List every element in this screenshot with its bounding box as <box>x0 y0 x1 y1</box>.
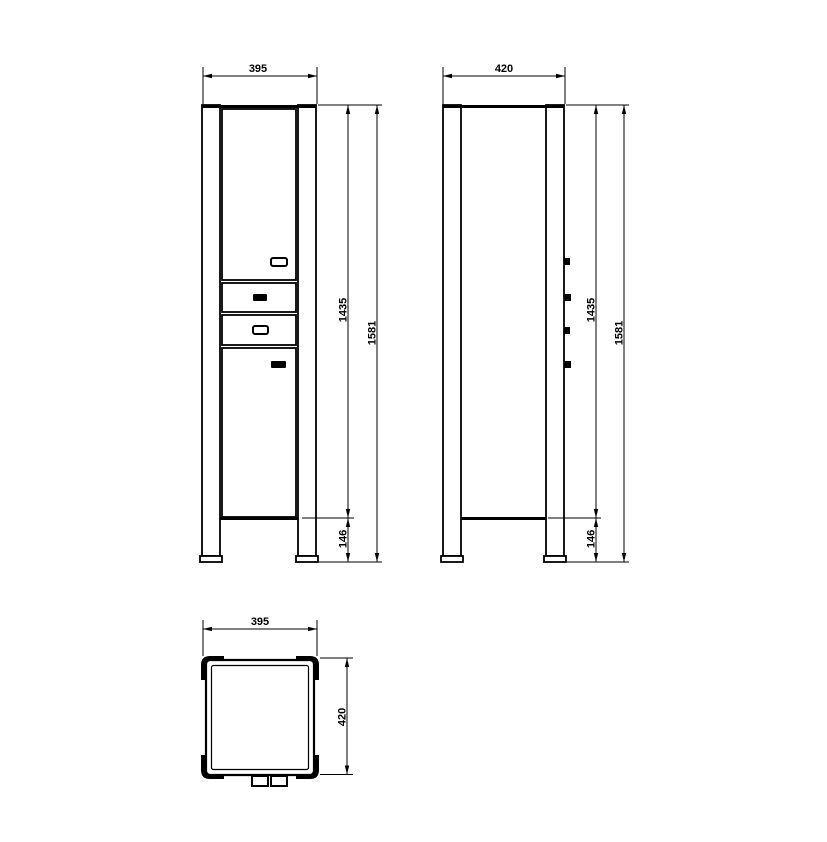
front-total-height-label: 1581 <box>367 321 379 345</box>
lower-door-handle <box>271 361 286 368</box>
top-depth-label: 420 <box>337 708 349 726</box>
arrow-down-icon <box>346 553 350 562</box>
top-cabinet <box>203 658 317 786</box>
arrow-right-icon <box>556 74 565 78</box>
arrow-down-icon <box>346 509 350 518</box>
cabinet-drawing: 395 1435 <box>0 0 827 842</box>
front-width-label: 395 <box>249 63 267 75</box>
drawer-1-handle <box>253 294 267 301</box>
arrow-down-icon <box>622 553 626 562</box>
front-lower-door <box>222 348 296 517</box>
front-leg-height-label: 146 <box>338 530 350 548</box>
arrow-up-icon <box>345 658 349 667</box>
arrow-down-icon <box>375 553 379 562</box>
side-back-foot <box>441 556 463 562</box>
arrow-down-icon <box>345 766 349 775</box>
front-left-leg <box>202 105 220 556</box>
drawer-1-handle-side <box>564 294 571 301</box>
arrow-left-icon <box>203 627 212 631</box>
top-width-dimension: 395 <box>203 616 317 656</box>
side-front-leg <box>546 105 564 556</box>
top-depth-dimension: 420 <box>320 658 353 775</box>
arrow-up-icon <box>594 518 598 527</box>
front-view: 395 1435 <box>200 63 382 562</box>
drawer-2-handle <box>253 326 268 334</box>
arrow-down-icon <box>594 553 598 562</box>
arrow-up-icon <box>375 105 379 114</box>
front-left-foot <box>200 556 222 562</box>
side-depth-label: 420 <box>495 63 513 75</box>
front-right-leg <box>298 105 316 556</box>
arrow-up-icon <box>346 518 350 527</box>
side-leg-height-label: 146 <box>586 530 598 548</box>
arrow-right-icon <box>308 74 317 78</box>
front-width-dimension: 395 <box>203 63 317 104</box>
side-front-foot <box>544 556 566 562</box>
side-depth-dimension: 420 <box>443 63 565 104</box>
upper-door-handle <box>271 258 287 266</box>
front-body-height-label: 1435 <box>338 298 350 322</box>
arrow-up-icon <box>594 105 598 114</box>
drawer-2-handle-side <box>564 327 570 334</box>
handle-tab-right <box>271 776 287 786</box>
front-cabinet <box>200 105 318 562</box>
front-upper-door <box>222 109 296 280</box>
arrow-right-icon <box>308 627 317 631</box>
side-body-height-label: 1435 <box>586 298 598 322</box>
arrow-up-icon <box>346 105 350 114</box>
top-view: 395 420 <box>203 616 353 786</box>
arrow-up-icon <box>622 105 626 114</box>
upper-door-handle-side <box>564 258 570 265</box>
top-width-label: 395 <box>251 616 269 628</box>
front-right-foot <box>296 556 318 562</box>
handle-tab-left <box>252 776 268 786</box>
side-back-leg <box>443 105 461 556</box>
lower-door-handle-side <box>564 361 571 368</box>
top-body-outline <box>206 660 314 775</box>
arrow-left-icon <box>443 74 452 78</box>
side-total-height-label: 1581 <box>614 321 626 345</box>
arrow-left-icon <box>203 74 212 78</box>
side-cabinet <box>441 105 571 562</box>
arrow-down-icon <box>594 509 598 518</box>
technical-drawing-canvas: 395 1435 <box>0 0 827 842</box>
side-view: 420 1435 1581 <box>441 63 629 562</box>
